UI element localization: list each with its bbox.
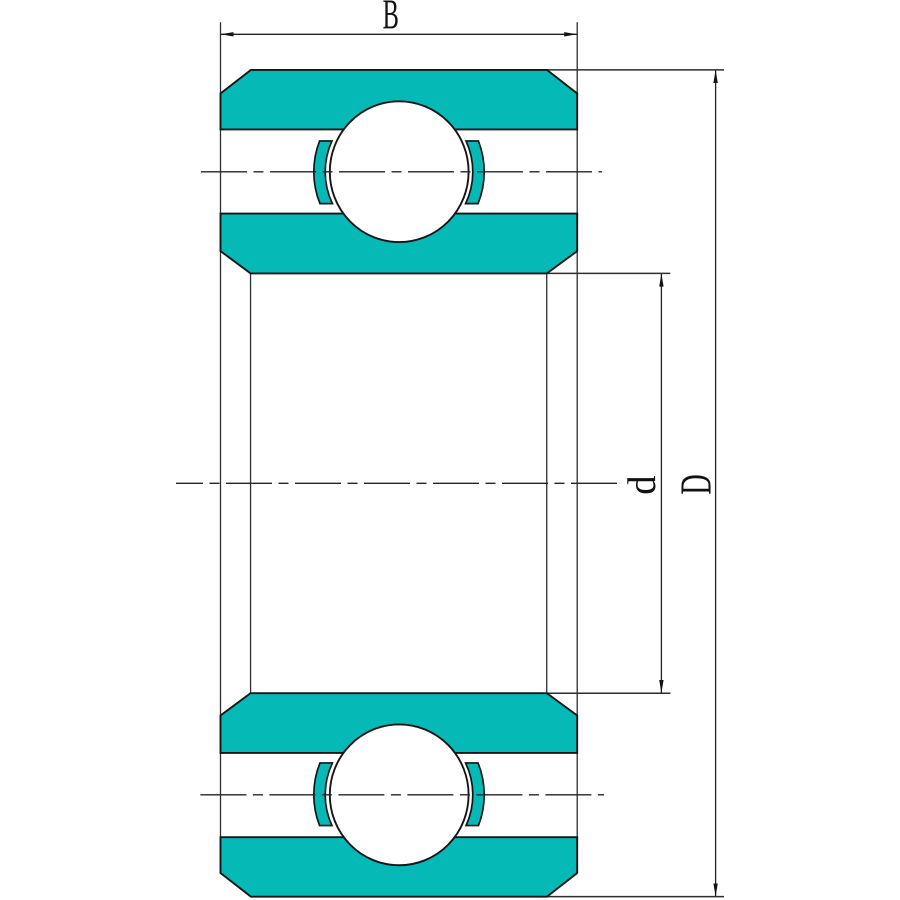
svg-text:B: B [383,0,399,38]
svg-text:d: d [619,475,664,494]
svg-text:D: D [671,474,720,494]
